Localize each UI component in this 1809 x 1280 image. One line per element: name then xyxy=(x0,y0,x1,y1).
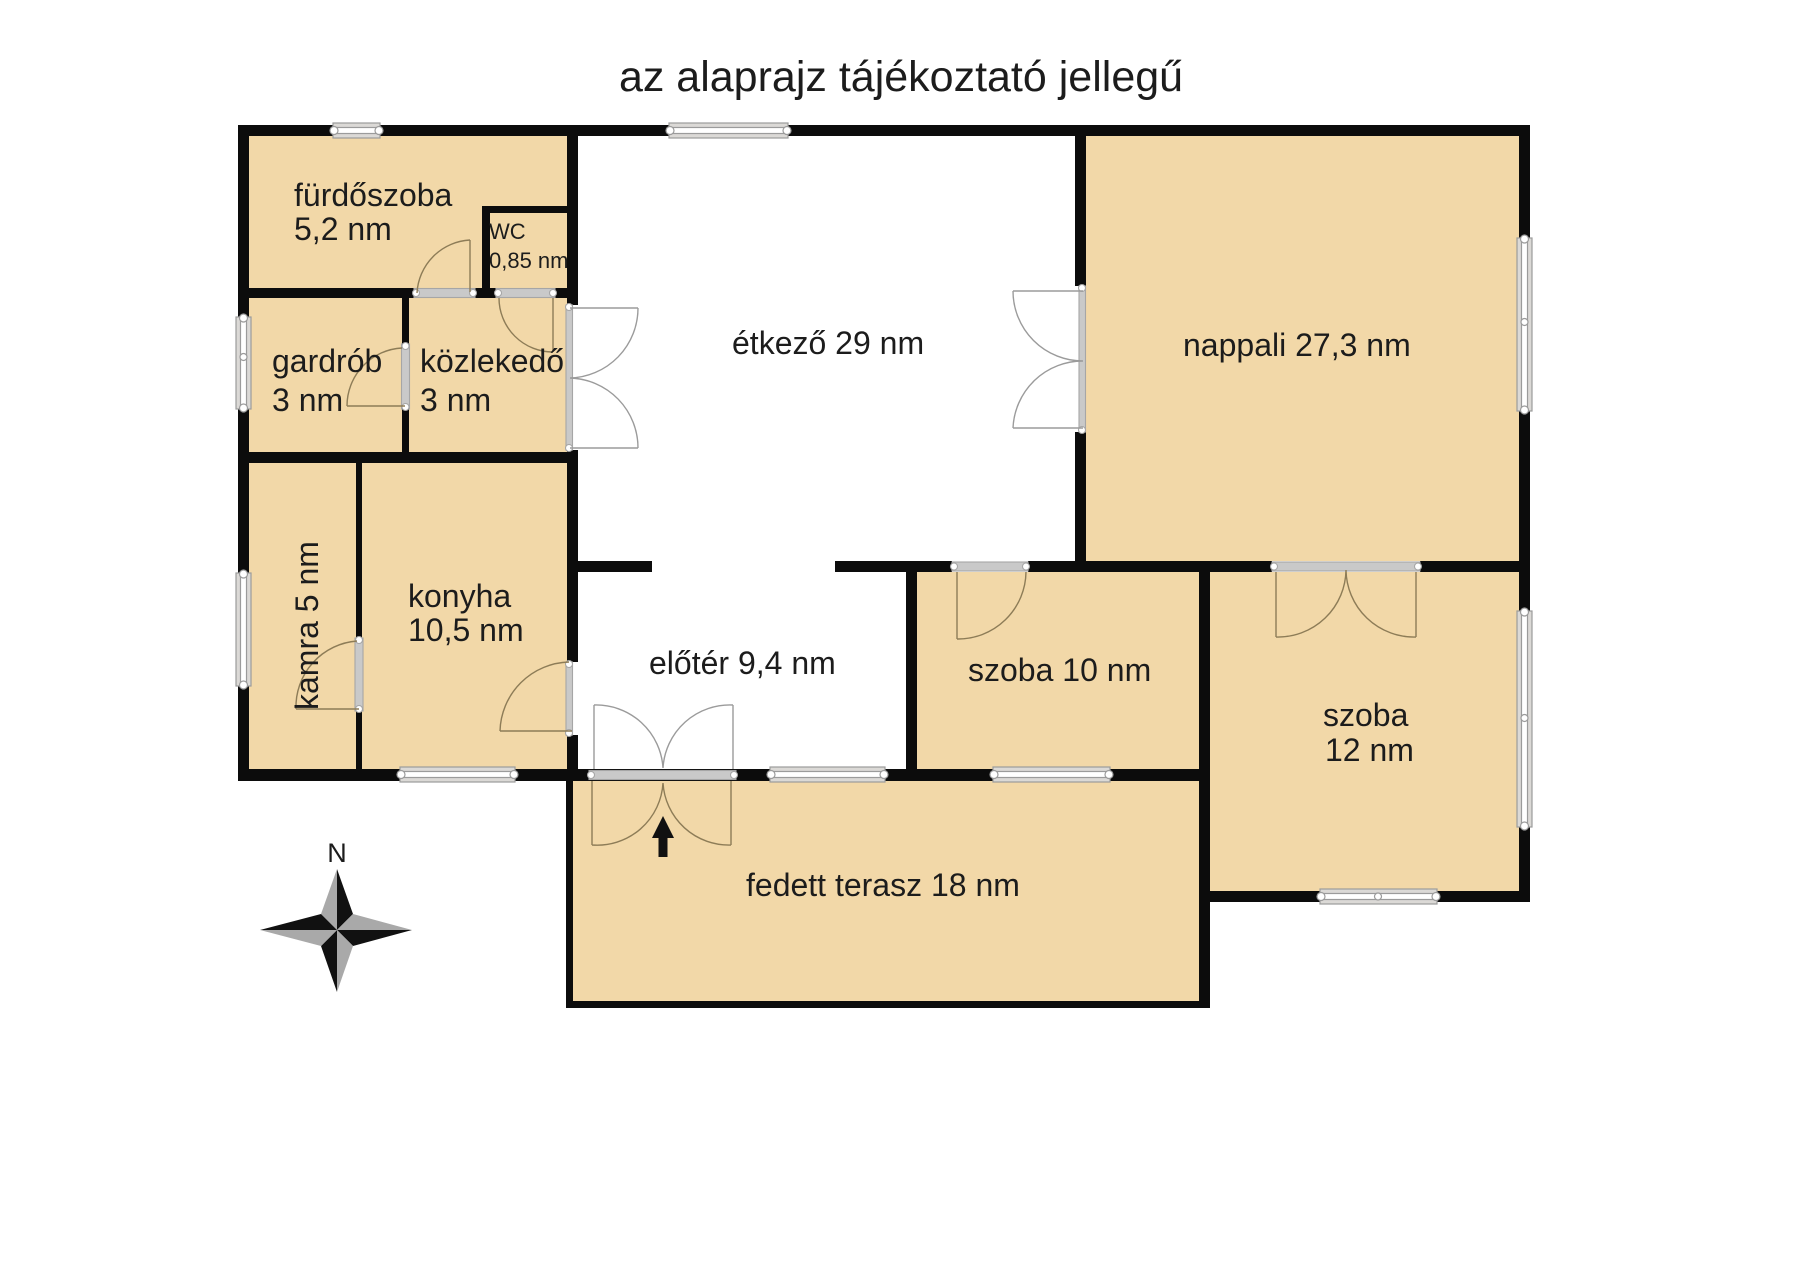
svg-text:3 nm: 3 nm xyxy=(420,382,491,418)
svg-text:előtér 9,4 nm: előtér 9,4 nm xyxy=(649,645,836,681)
svg-text:5,2 nm: 5,2 nm xyxy=(294,211,392,247)
svg-text:fürdőszoba: fürdőszoba xyxy=(294,177,453,213)
svg-text:kamra 5 nm: kamra 5 nm xyxy=(289,541,325,710)
svg-text:étkező 29 nm: étkező 29 nm xyxy=(732,325,924,361)
svg-text:10,5 nm: 10,5 nm xyxy=(408,612,524,648)
svg-text:WC: WC xyxy=(489,219,526,244)
svg-text:12 nm: 12 nm xyxy=(1325,732,1414,768)
svg-text:közlekedő: közlekedő xyxy=(420,343,564,379)
svg-text:0,85 nm: 0,85 nm xyxy=(489,248,569,273)
svg-text:szoba: szoba xyxy=(1323,697,1409,733)
svg-text:az alaprajz tájékoztató jelleg: az alaprajz tájékoztató jellegű xyxy=(619,53,1183,101)
svg-text:gardrób: gardrób xyxy=(272,343,382,379)
svg-text:N: N xyxy=(327,838,347,868)
svg-text:konyha: konyha xyxy=(408,578,511,614)
svg-text:fedett terasz 18 nm: fedett terasz 18 nm xyxy=(746,867,1020,903)
svg-text:nappali 27,3 nm: nappali 27,3 nm xyxy=(1183,327,1411,363)
svg-text:szoba 10 nm: szoba 10 nm xyxy=(968,652,1151,688)
svg-text:3 nm: 3 nm xyxy=(272,382,343,418)
